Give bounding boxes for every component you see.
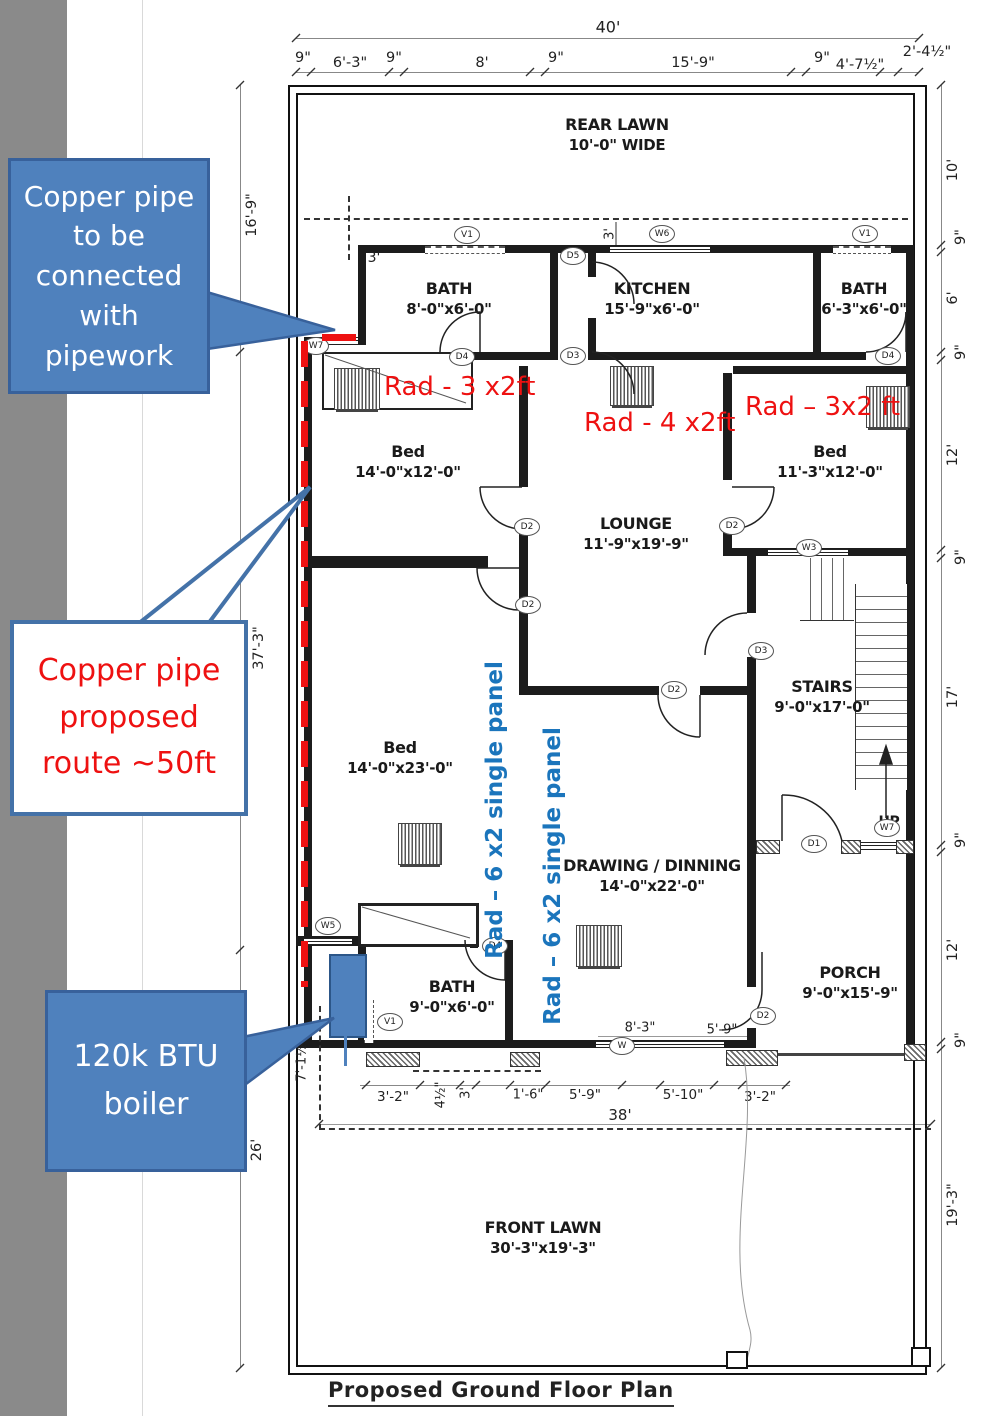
callout-pointer-pipe-route xyxy=(138,487,310,624)
callout-pointer-boiler xyxy=(238,1018,334,1090)
callout-boiler[interactable]: 120k BTU boiler xyxy=(45,990,247,1172)
callout-pipe-route[interactable]: Copper pipe proposed route ~50ft xyxy=(10,620,248,816)
callout-pipe-connect[interactable]: Copper pipe to be connected with pipewor… xyxy=(8,158,210,394)
callout-pointer-pipe-connect xyxy=(200,290,335,350)
floor-plan-page: REAR LAWN10'-0" WIDE BATH8'-0"x6'-0" KIT… xyxy=(0,0,981,1416)
